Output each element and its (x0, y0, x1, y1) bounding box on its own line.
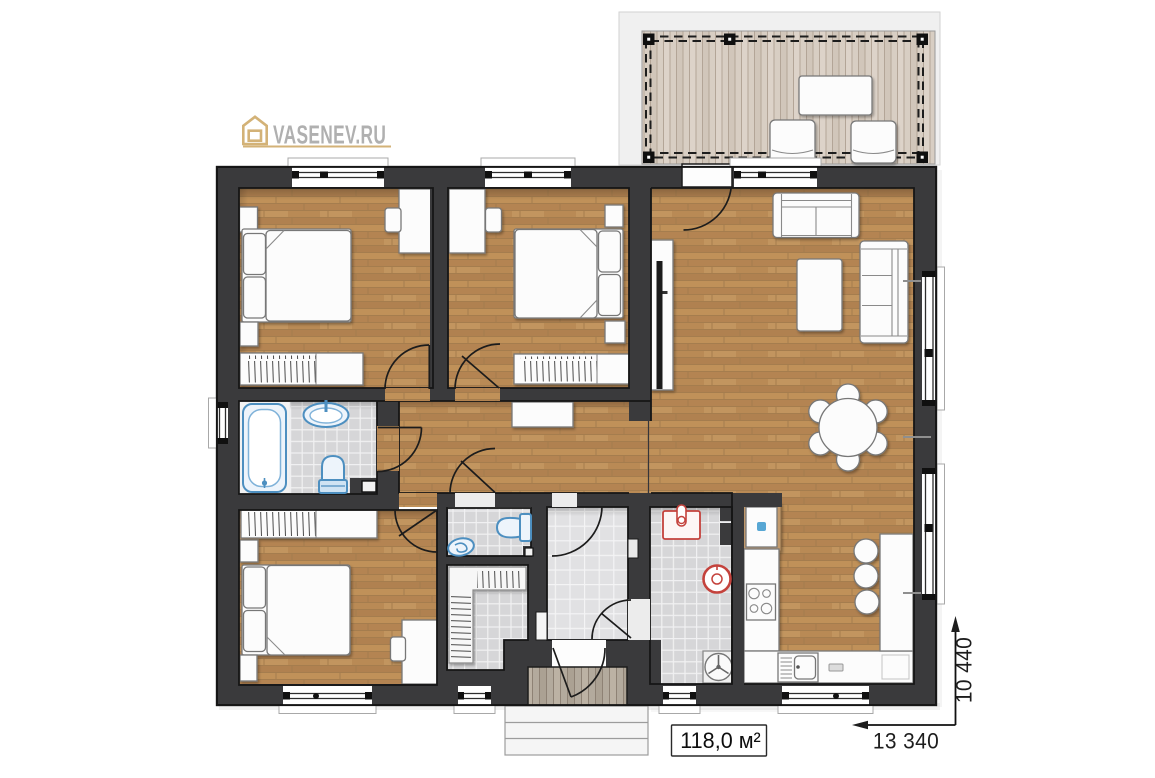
svg-text:10 440: 10 440 (951, 637, 977, 703)
svg-text:13 340: 13 340 (873, 728, 939, 754)
svg-text:118,0 м²: 118,0 м² (680, 728, 760, 754)
svg-text:VASENEV.RU: VASENEV.RU (273, 120, 386, 149)
